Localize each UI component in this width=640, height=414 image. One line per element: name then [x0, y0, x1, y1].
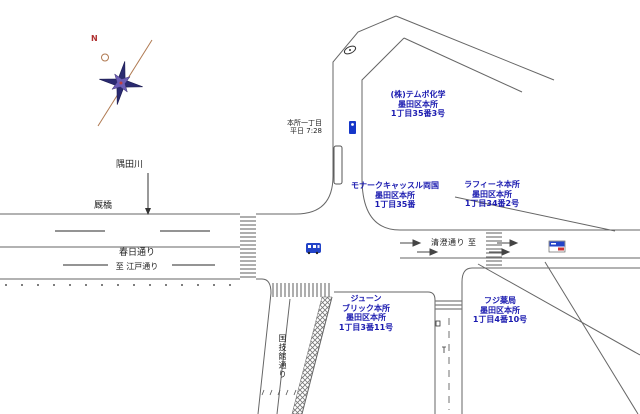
street-map[interactable]: N 隅田川 厩橋 春日通り 至 江戸通り 清澄通り 至 国技館通り 本所一丁目 … — [0, 0, 640, 414]
building-address-block: 1丁目35番 — [351, 200, 439, 210]
intersection-sign-name: 本所一丁目 — [274, 119, 322, 127]
building-address-ward: 墨田区本所 — [473, 306, 527, 316]
building-name: (株)テムポ化学 — [390, 90, 445, 100]
road-label-kiyosumi: 清澄通り 至 — [431, 237, 477, 248]
roadside-sign-marks — [436, 321, 446, 353]
river-arrow — [145, 173, 151, 215]
building-address-block: 1丁目34番2号 — [464, 199, 520, 209]
building-label-tempo-kagaku: (株)テムポ化学 墨田区本所 1丁目35番3号 — [390, 90, 445, 119]
road-outlines — [0, 16, 640, 414]
compass-north-label: N — [91, 34, 98, 43]
bridge-label: 厩橋 — [94, 201, 112, 211]
building-address-ward: 墨田区本所 — [339, 313, 393, 323]
road-label-kokugikan: 国技館通り — [278, 334, 287, 396]
median-island — [334, 146, 342, 184]
building-name-line1: ジューン — [339, 294, 393, 304]
building-label-fuji-pharmacy: フジ薬局 墨田区本所 1丁目4番10号 — [473, 296, 527, 325]
building-address-block: 1丁目35番3号 — [390, 109, 445, 119]
intersection-sign: 本所一丁目 平日 7:28 — [274, 119, 322, 135]
intersection-sign-time: 平日 7:28 — [274, 127, 322, 135]
building-label-monarch-castle: モナークキャッスル両国 墨田区本所 1丁目35番 — [351, 181, 439, 210]
building-address-block: 1丁目4番10号 — [473, 315, 527, 325]
building-address-ward: 墨田区本所 — [351, 191, 439, 201]
map-symbol-icon — [343, 45, 357, 56]
building-address-block: 1丁目3番11号 — [339, 323, 393, 333]
bridge-railing-marks — [5, 284, 231, 286]
building-label-raffine-honjo: ラフィーネ本所 墨田区本所 1丁目34番2号 — [464, 180, 520, 209]
river-label: 隅田川 — [116, 160, 143, 170]
signal-icon — [349, 121, 356, 134]
building-address-ward: 墨田区本所 — [390, 100, 445, 110]
building-label-june-brick-honjo: ジューン ブリック本所 墨田区本所 1丁目3番11号 — [339, 294, 393, 332]
building-name: モナークキャッスル両国 — [351, 181, 439, 191]
road-label-kasuga: 春日通り — [119, 245, 155, 258]
compass-rose — [98, 40, 152, 126]
bus-stop-icon-east — [549, 241, 565, 252]
building-name: ラフィーネ本所 — [464, 180, 520, 190]
building-name: フジ薬局 — [473, 296, 527, 306]
building-name-line2: ブリック本所 — [339, 304, 393, 314]
building-address-ward: 墨田区本所 — [464, 190, 520, 200]
road-label-kasuga-destination: 至 江戸通り — [116, 261, 159, 272]
bus-stop-icon-west — [306, 243, 321, 254]
